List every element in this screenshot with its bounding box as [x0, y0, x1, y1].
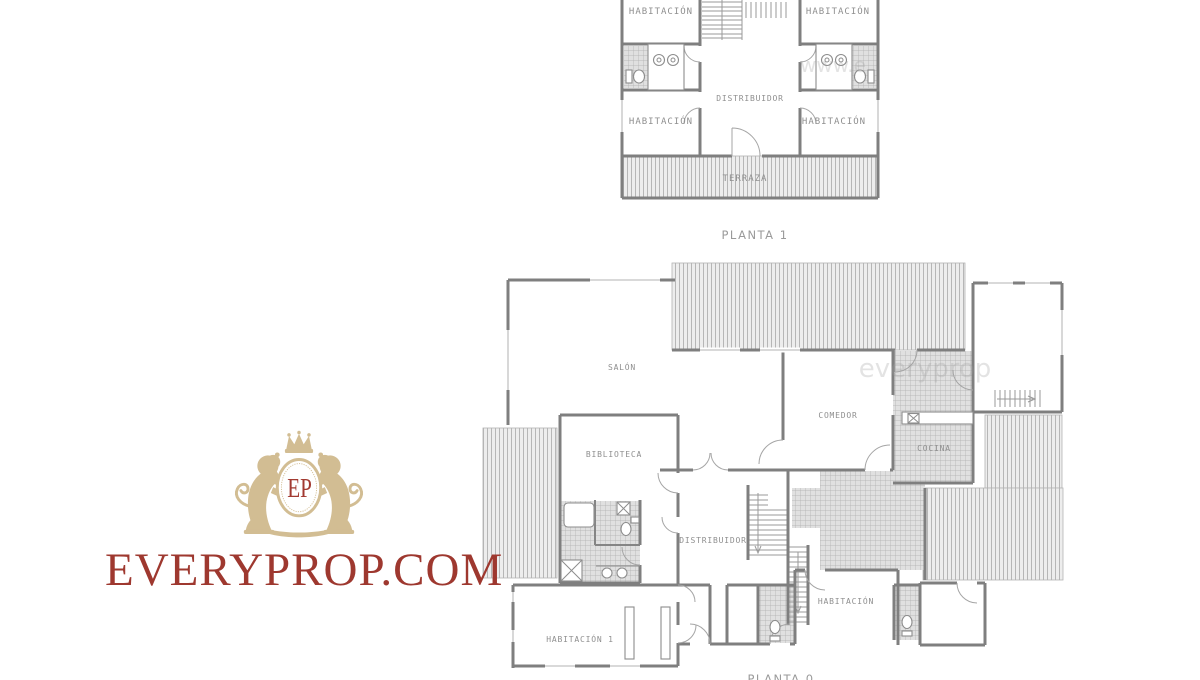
watermark-bottom: everyprop	[859, 354, 992, 384]
room-label-kitchen: COCINA	[917, 444, 951, 453]
site-name: EVERYPROP.COM	[105, 547, 493, 594]
crown-icon	[285, 431, 313, 453]
plan1-caption: PLANTA 1	[721, 228, 788, 242]
room-label-bedroom-mid-left: HABITACIÓN	[629, 115, 693, 127]
logo: EP EVERYPROP.COM	[105, 429, 493, 594]
room-label-terrace: TERRAZA	[723, 174, 768, 184]
room-label-bedroom-top-right: HABITACIÓN	[806, 5, 870, 17]
porch-hatch	[672, 263, 965, 350]
page: { "branding": { "monogram": "EP", "site_…	[0, 0, 1200, 680]
logo-crest: EP	[193, 429, 405, 544]
room-label-dining: COMEDOR	[818, 411, 857, 420]
logo-ribbon	[261, 526, 336, 537]
floor-plan-planta-0: SALÓN COMEDOR COCINA BIBLIOTECA DISTRIBU…	[470, 255, 1090, 680]
logo-monogram: EP	[287, 473, 312, 503]
room-label-bedroom-top-left: HABITACIÓN	[629, 5, 693, 17]
watermark-top: www.e	[800, 53, 866, 77]
room-label-bedroom-mid-right: HABITACIÓN	[802, 115, 866, 127]
room-label-hall: DISTRIBUIDOR	[716, 94, 783, 103]
stairs-icon	[702, 0, 786, 40]
terrace-right-hatch-lower	[923, 488, 1063, 580]
room-label-library: BIBLIOTECA	[586, 450, 642, 459]
floor-plan-planta-1: HABITACIÓN HABITACIÓN HABITACIÓN HABITAC…	[598, 0, 902, 248]
room-label-bedroom-1: HABITACIÓN 1	[546, 633, 613, 644]
terrace-right-hatch-upper	[985, 415, 1062, 488]
room-label-bedroom: HABITACIÓN	[818, 595, 874, 606]
plan2-caption: PLANTA 0	[747, 672, 814, 680]
corridor-tiles-patch	[792, 488, 820, 528]
corridor-tiles	[820, 471, 925, 570]
room-label-hall: DISTRIBUIDOR	[679, 536, 746, 545]
room-label-living: SALÓN	[608, 361, 636, 372]
